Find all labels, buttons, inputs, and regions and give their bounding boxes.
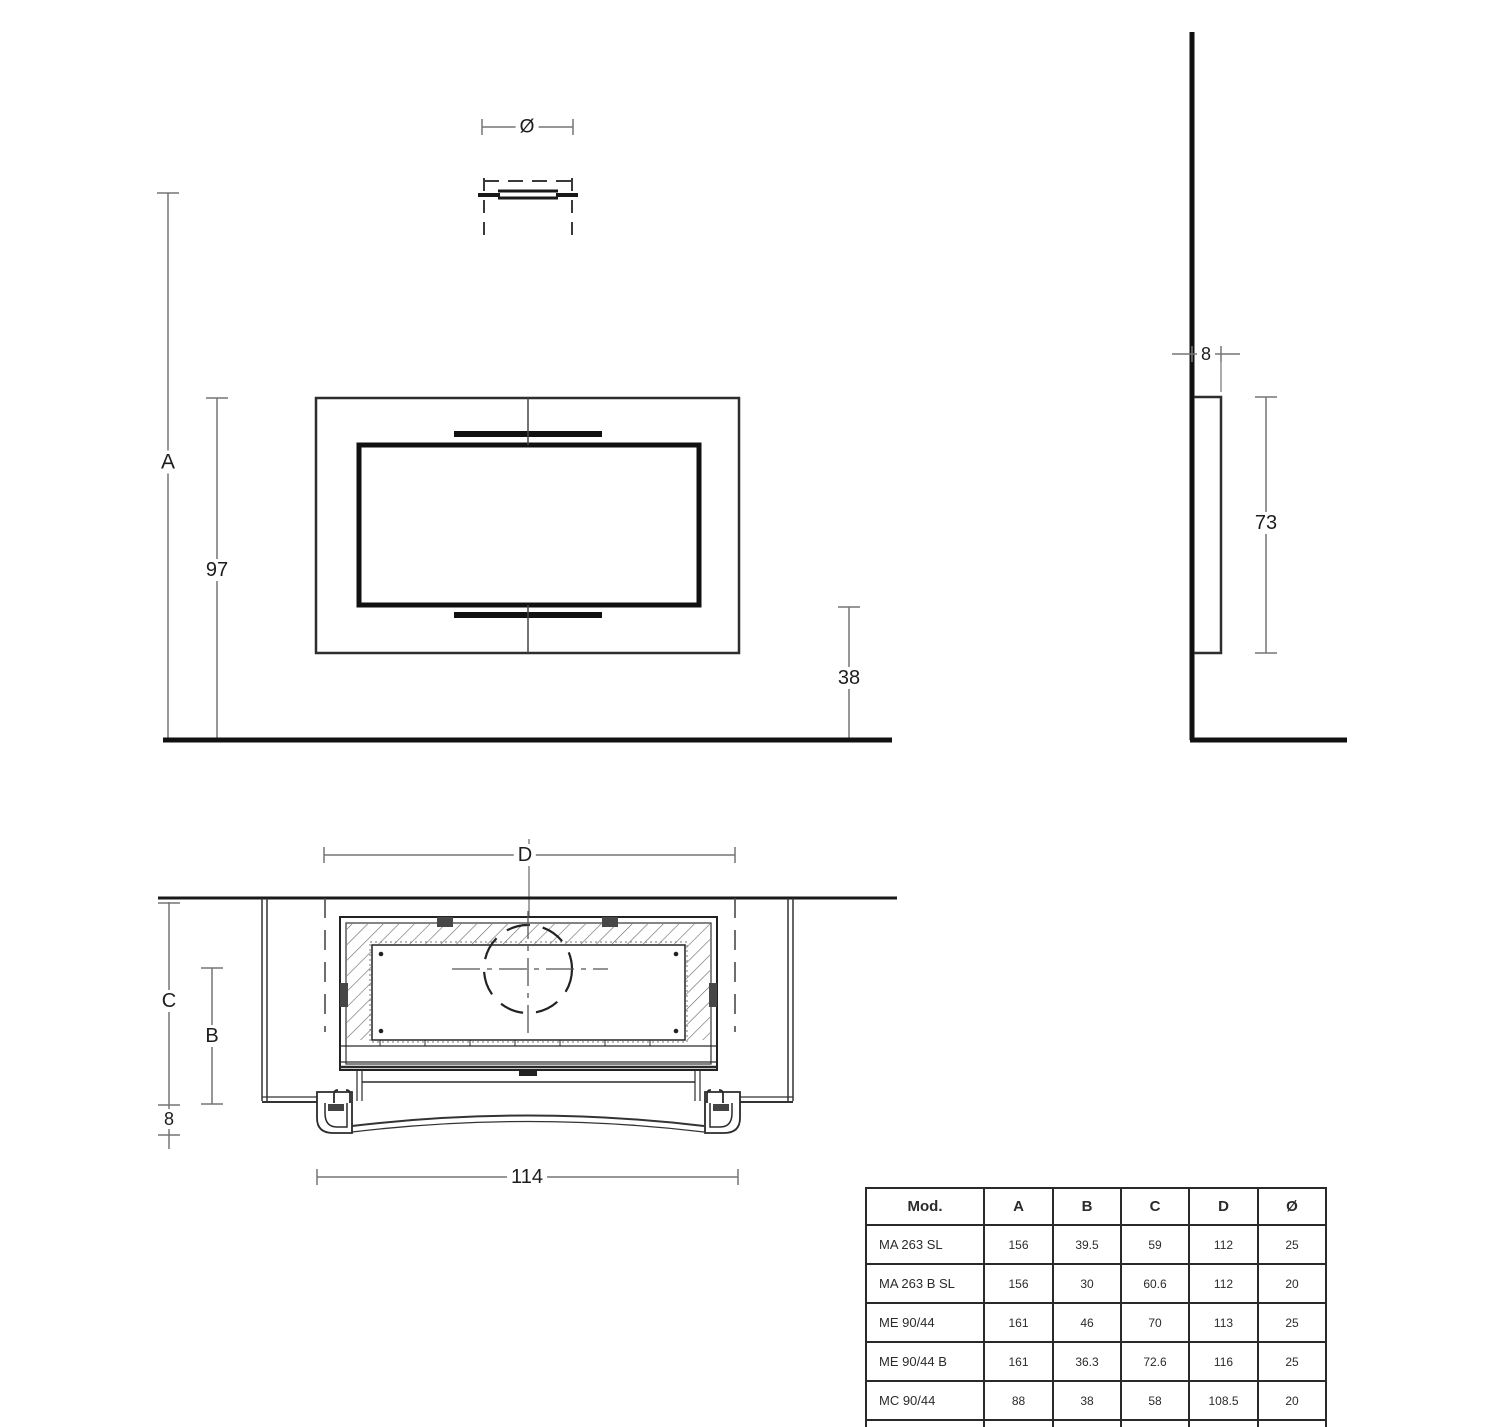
cell-model: ME 90/44 — [866, 1303, 984, 1342]
hidden-niche-edges — [325, 898, 735, 1032]
col-header-a: A — [984, 1188, 1053, 1225]
dim-label-114: 114 — [507, 1166, 547, 1188]
cell-model: MC 90/44 — [866, 1381, 984, 1420]
cell-c: 60.6 — [1121, 1264, 1189, 1303]
cell-b: 36.3 — [1053, 1342, 1121, 1381]
left-bracket — [317, 1090, 352, 1133]
cell-diameter: 15 — [1258, 1420, 1326, 1427]
cell-c: 72.6 — [1121, 1342, 1189, 1381]
cell-d: 113 — [1189, 1303, 1258, 1342]
center-latch — [519, 1071, 537, 1076]
cell-diameter: 25 — [1258, 1225, 1326, 1264]
dim-label-b: B — [201, 1025, 222, 1047]
table-header-row: Mod. A B C D Ø — [866, 1188, 1326, 1225]
table-row: MA 263 B SL 156 30 60.6 112 20 — [866, 1264, 1326, 1303]
col-header-diameter: Ø — [1258, 1188, 1326, 1225]
cell-d: 108.5 — [1189, 1381, 1258, 1420]
cell-diameter: 20 — [1258, 1381, 1326, 1420]
table-row: IG 90 89.5 25.5 43 103 15 — [866, 1420, 1326, 1427]
cell-model: ME 90/44 B — [866, 1342, 984, 1381]
col-header-mod: Mod. — [866, 1188, 984, 1225]
fireplace-dimension-diagram: Ø A 97 38 8 73 D C B 8 114 Mod. A B C D … — [0, 0, 1500, 1427]
cell-a: 156 — [984, 1264, 1053, 1303]
cell-b: 38 — [1053, 1381, 1121, 1420]
cell-a: 88 — [984, 1381, 1053, 1420]
cell-model: MA 263 SL — [866, 1225, 984, 1264]
cell-d: 103 — [1189, 1420, 1258, 1427]
cell-b: 25.5 — [1053, 1420, 1121, 1427]
side-view — [1172, 32, 1347, 740]
cell-model: IG 90 — [866, 1420, 984, 1427]
dim-label-d: D — [514, 844, 536, 866]
dim-label-8-plan: 8 — [160, 1109, 178, 1129]
dim-label-c: C — [158, 990, 180, 1012]
model-dimensions-table: Mod. A B C D Ø MA 263 SL 156 39.5 59 112… — [865, 1187, 1327, 1427]
cell-b: 39.5 — [1053, 1225, 1121, 1264]
table-row: MA 263 SL 156 39.5 59 112 25 — [866, 1225, 1326, 1264]
dim-label-38: 38 — [834, 667, 864, 689]
col-header-d: D — [1189, 1188, 1258, 1225]
table-row: MC 90/44 88 38 58 108.5 20 — [866, 1381, 1326, 1420]
dim-label-a: A — [157, 451, 179, 474]
table-row: ME 90/44 161 46 70 113 25 — [866, 1303, 1326, 1342]
cell-d: 112 — [1189, 1264, 1258, 1303]
cell-model: MA 263 B SL — [866, 1264, 984, 1303]
cell-c: 43 — [1121, 1420, 1189, 1427]
cell-a: 161 — [984, 1303, 1053, 1342]
front-panel-curve-outer — [352, 1116, 704, 1127]
dim-label-73: 73 — [1251, 512, 1281, 534]
insulation-right — [686, 944, 710, 1040]
cell-diameter: 25 — [1258, 1342, 1326, 1381]
cell-diameter: 25 — [1258, 1303, 1326, 1342]
flue-stub-dashed — [478, 178, 578, 243]
cell-c: 70 — [1121, 1303, 1189, 1342]
cell-a: 161 — [984, 1342, 1053, 1381]
cell-c: 58 — [1121, 1381, 1189, 1420]
col-header-c: C — [1121, 1188, 1189, 1225]
dim-label-97: 97 — [202, 559, 232, 581]
cell-d: 116 — [1189, 1342, 1258, 1381]
right-bracket — [705, 1090, 740, 1133]
cell-diameter: 20 — [1258, 1264, 1326, 1303]
cell-c: 59 — [1121, 1225, 1189, 1264]
firebox-opening — [359, 445, 699, 605]
col-header-b: B — [1053, 1188, 1121, 1225]
dim-label-diameter: Ø — [516, 117, 539, 138]
cell-b: 30 — [1053, 1264, 1121, 1303]
table-row: ME 90/44 B 161 36.3 72.6 116 25 — [866, 1342, 1326, 1381]
insulation-left — [347, 944, 371, 1040]
cell-a: 89.5 — [984, 1420, 1053, 1427]
cell-d: 112 — [1189, 1225, 1258, 1264]
fireplace-profile — [1194, 397, 1221, 653]
front-view — [157, 119, 892, 740]
front-panel-curve-inner — [352, 1122, 704, 1133]
cell-a: 156 — [984, 1225, 1053, 1264]
plan-view — [158, 839, 897, 1185]
cell-b: 46 — [1053, 1303, 1121, 1342]
dim-label-8-side: 8 — [1197, 344, 1215, 364]
